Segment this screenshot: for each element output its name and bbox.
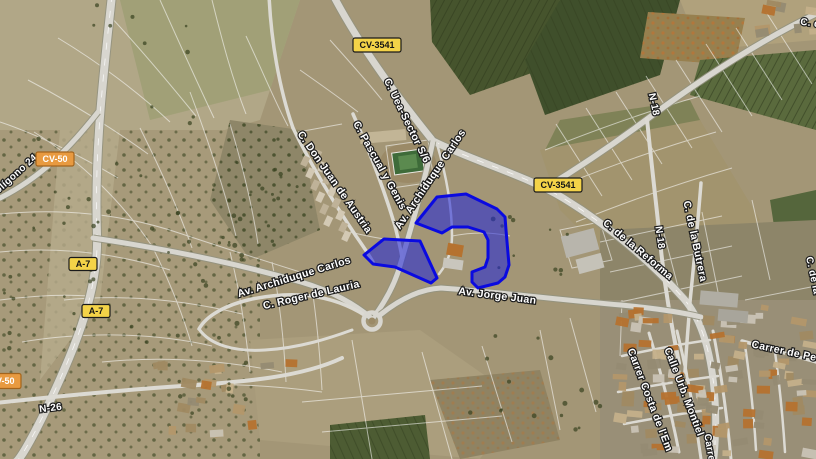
map-svg: C. Uea-Sector S/6C. Pascual y GenisC. Do… xyxy=(0,0,816,459)
route-badge: A-7 xyxy=(69,258,97,271)
route-badge: CV-3541 xyxy=(534,178,582,192)
route-badge-label: A-7 xyxy=(89,306,104,316)
satellite-map-canvas[interactable]: C. Uea-Sector S/6C. Pascual y GenisC. Do… xyxy=(0,0,816,459)
route-badge-label: CV-3541 xyxy=(540,180,575,190)
route-badge-label: CV-50 xyxy=(0,376,15,386)
route-badge-label: CV-50 xyxy=(42,154,67,164)
route-badge: CV-50 xyxy=(0,374,21,389)
route-badge: A-7 xyxy=(82,305,110,318)
route-badge: CV-50 xyxy=(36,152,74,166)
route-badge-label: CV-3541 xyxy=(359,40,394,50)
route-badge: CV-3541 xyxy=(353,38,401,52)
route-badge-label: A-7 xyxy=(76,259,91,269)
